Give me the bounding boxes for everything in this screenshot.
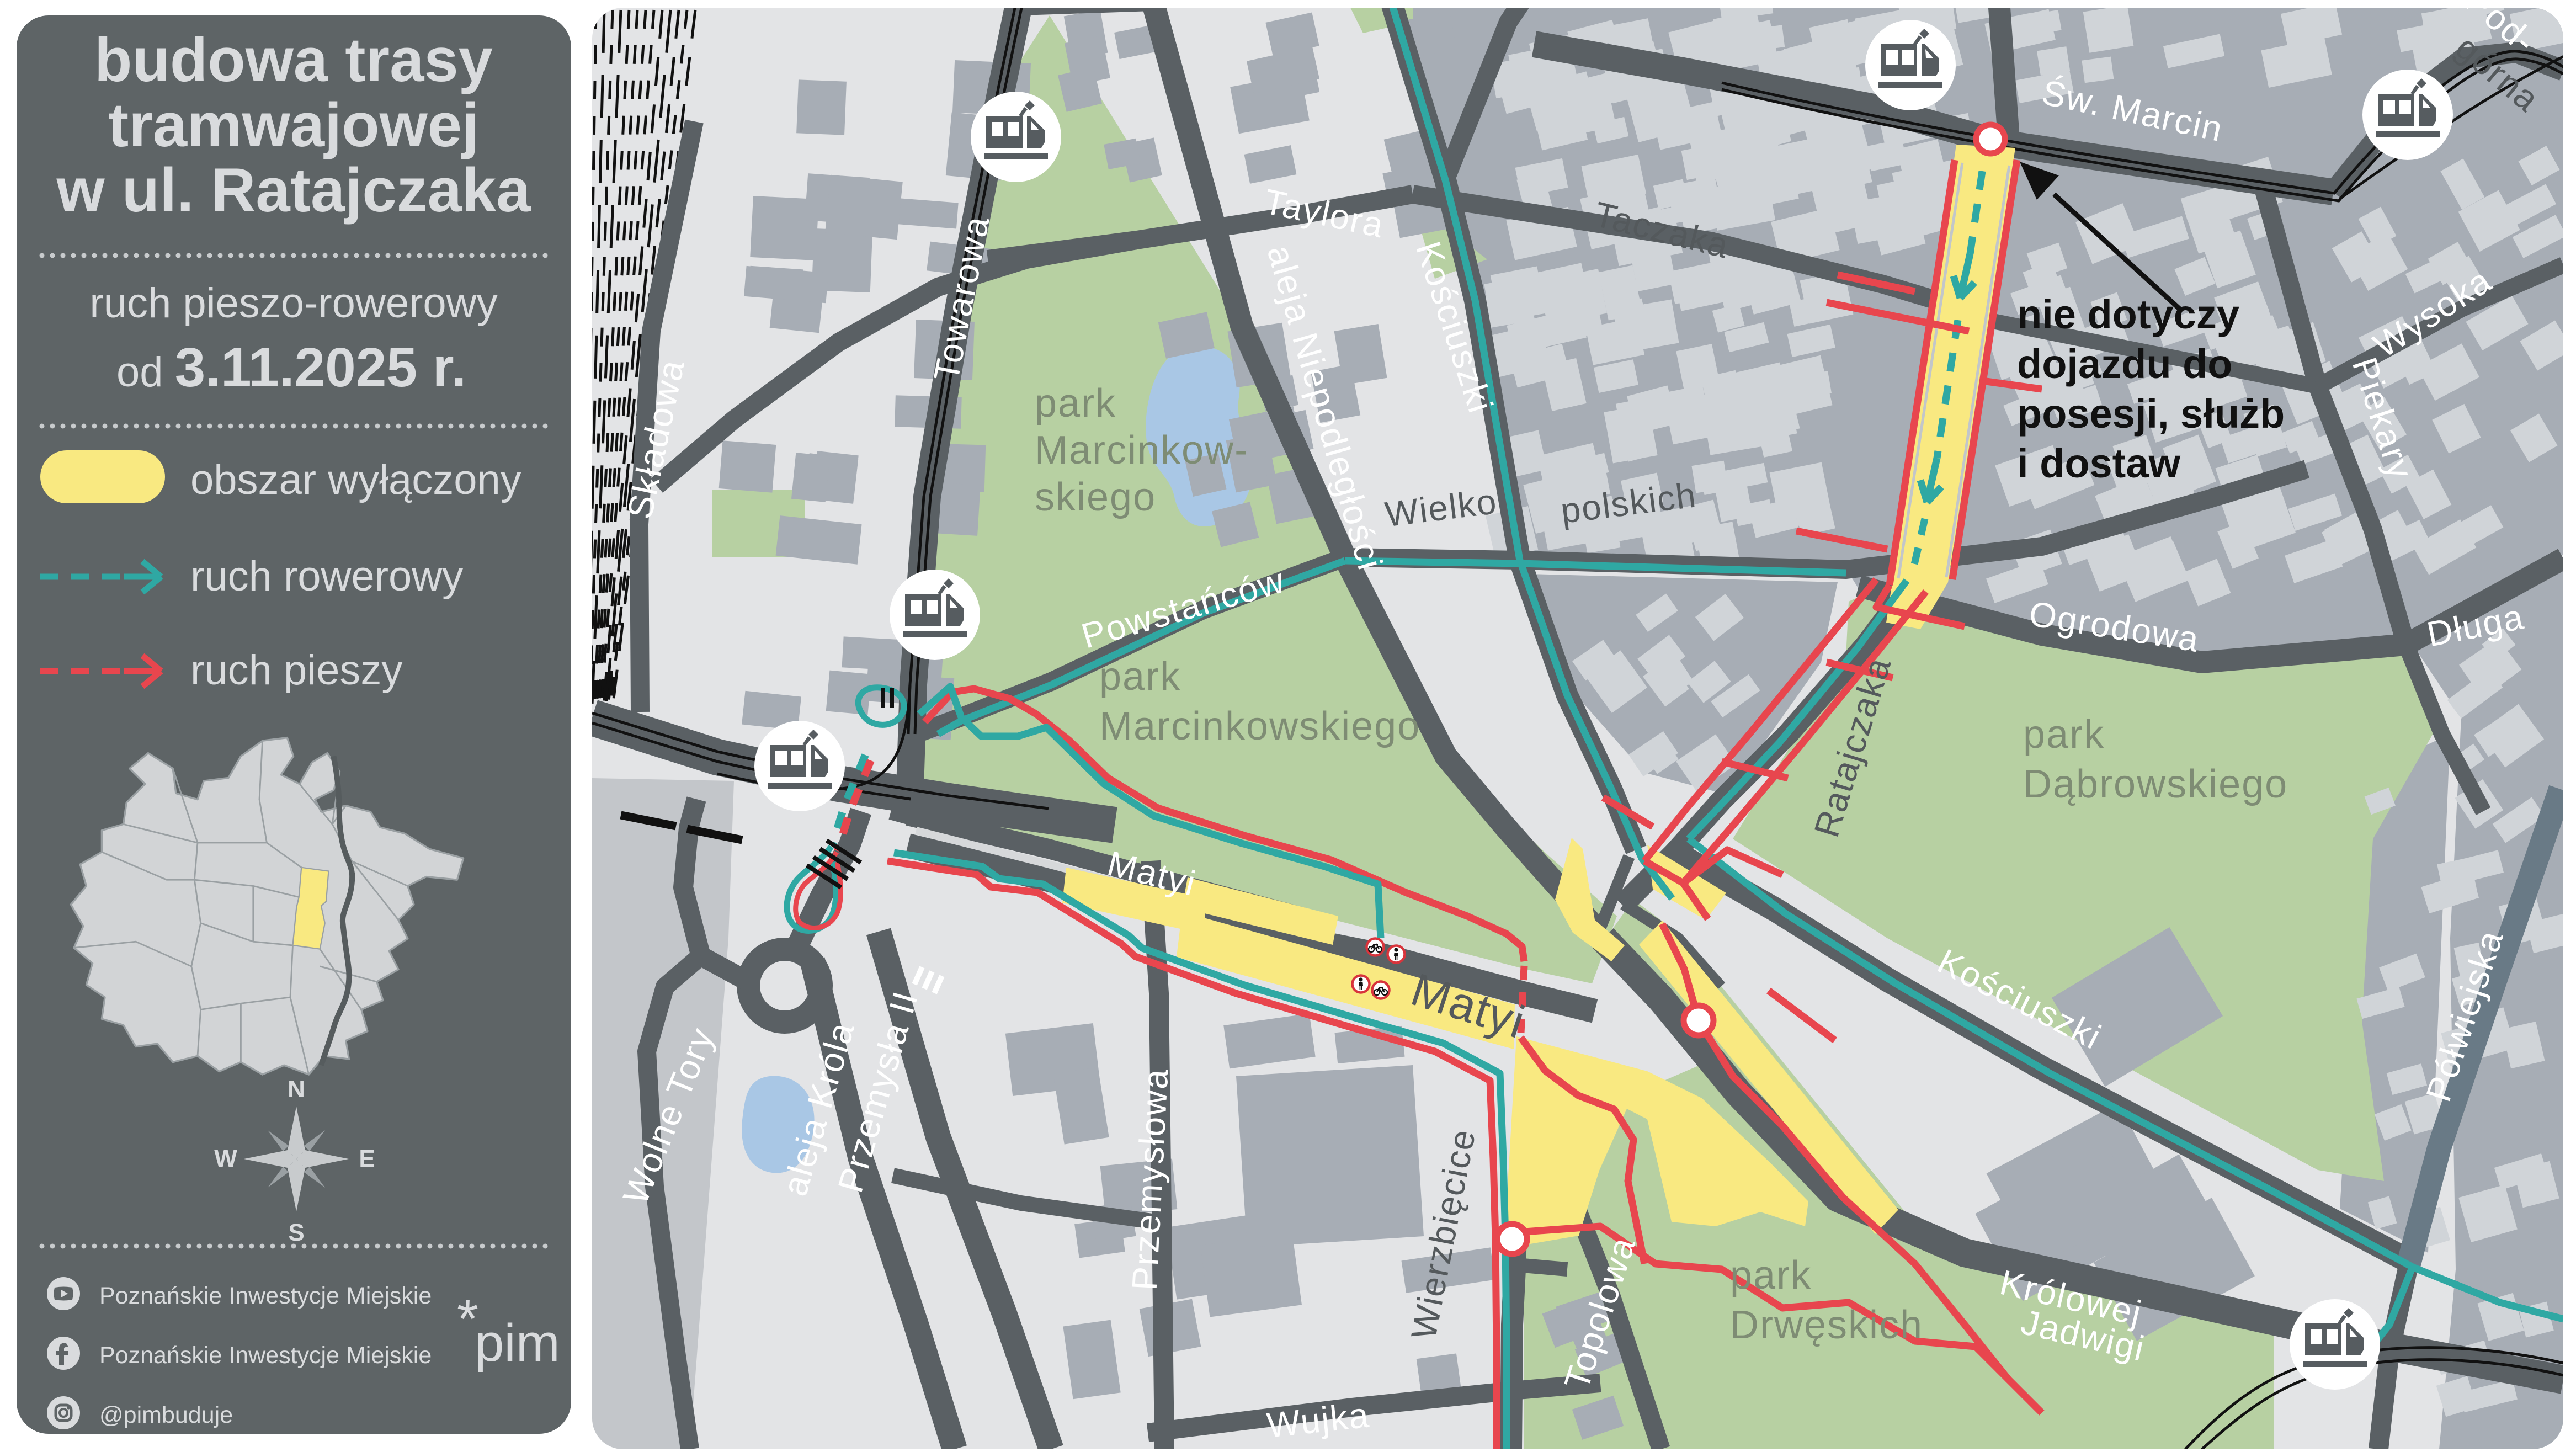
svg-text:posesji, służb: posesji, służb	[2017, 391, 2285, 437]
svg-text:budowa trasy: budowa trasy	[94, 25, 493, 94]
svg-text:E: E	[359, 1145, 375, 1172]
svg-text:park: park	[1099, 655, 1181, 699]
svg-text:nie dotyczy: nie dotyczy	[2017, 291, 2239, 337]
svg-text:@pimbuduje: @pimbuduje	[99, 1402, 233, 1428]
svg-text:dojazdu do: dojazdu do	[2017, 341, 2233, 387]
svg-text:ruch rowerowy: ruch rowerowy	[190, 553, 463, 600]
svg-text:Poznańskie Inwestycje Miejskie: Poznańskie Inwestycje Miejskie	[99, 1342, 432, 1369]
svg-text:park: park	[2023, 712, 2105, 757]
svg-text:ruch pieszy: ruch pieszy	[190, 647, 402, 694]
svg-text:i dostaw: i dostaw	[2017, 440, 2180, 486]
svg-text:W: W	[214, 1145, 237, 1172]
svg-text:ruch pieszo-rowerowy: ruch pieszo-rowerowy	[89, 280, 497, 327]
svg-text:skiego: skiego	[1035, 475, 1156, 519]
svg-text:park: park	[1730, 1253, 1812, 1297]
svg-text:Marcinkowskiego: Marcinkowskiego	[1099, 704, 1420, 748]
svg-text:park: park	[1035, 381, 1116, 426]
svg-text:Drwęskich: Drwęskich	[1730, 1303, 1923, 1347]
svg-text:obszar wyłączony: obszar wyłączony	[190, 456, 521, 503]
svg-text:tramwajowej: tramwajowej	[108, 91, 479, 159]
svg-text:pim: pim	[475, 1313, 560, 1373]
svg-text:Marcinkow-: Marcinkow-	[1035, 428, 1249, 472]
svg-text:Poznańskie Inwestycje Miejskie: Poznańskie Inwestycje Miejskie	[99, 1283, 432, 1309]
svg-text:w ul. Ratajczaka: w ul. Ratajczaka	[56, 156, 531, 225]
svg-text:Dąbrowskiego: Dąbrowskiego	[2023, 762, 2288, 806]
svg-text:S: S	[288, 1219, 304, 1246]
svg-text:N: N	[288, 1076, 305, 1103]
